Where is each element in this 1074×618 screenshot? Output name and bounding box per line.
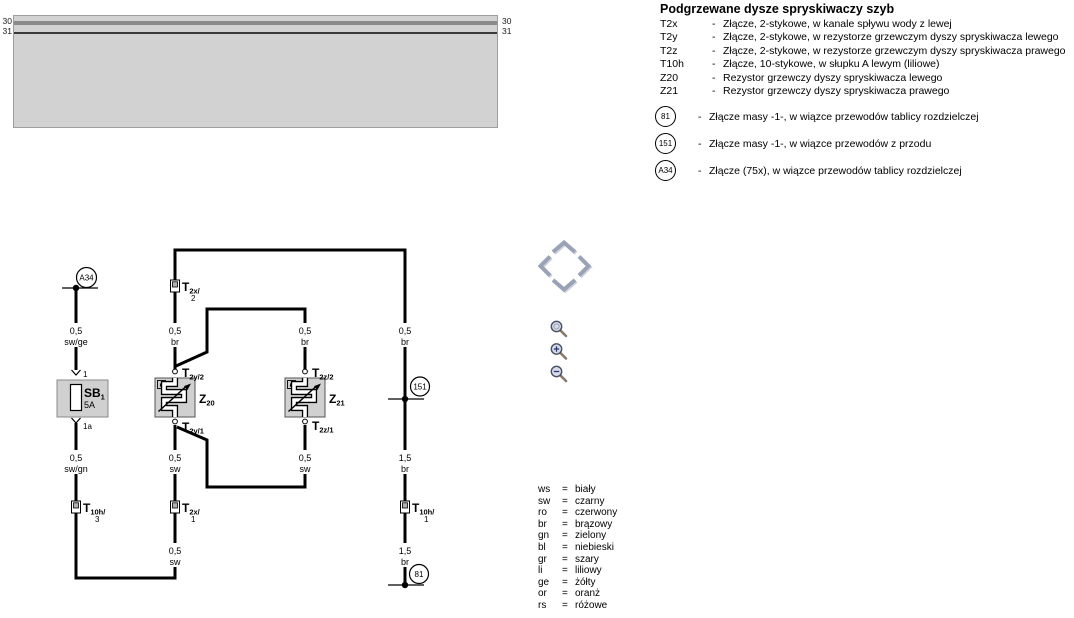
wiring-diagram-page: 30 31 30 31 xyxy=(0,0,1074,618)
svg-text:sw/gn: sw/gn xyxy=(64,464,88,474)
zoom-out-button[interactable] xyxy=(551,366,566,381)
resistor-z20: T2y/2 T2y/1 Z20 xyxy=(155,366,215,436)
legend-item: T10h-Złącze, 10-stykowe, w słupku A lewy… xyxy=(660,58,1071,71)
arrow-down-icon xyxy=(72,418,81,423)
pan-right-button[interactable] xyxy=(579,257,590,277)
circuit-wires xyxy=(76,250,405,585)
fuse-pin-top: 1 xyxy=(83,370,88,379)
svg-text:sw: sw xyxy=(170,557,182,567)
a34-circle-icon: A34 xyxy=(655,160,676,181)
junction-dot xyxy=(73,285,79,291)
svg-text:81: 81 xyxy=(415,570,424,579)
svg-text:0,5: 0,5 xyxy=(169,453,182,463)
legend-item: Z21-Rezystor grzewczy dyszy spryskiwacza… xyxy=(660,85,1071,98)
svg-text:br: br xyxy=(171,337,179,347)
color-row: ws=biały xyxy=(538,484,617,496)
legend-circle-item: 151-Złącze masy -1-, w wiązce przewodów … xyxy=(655,133,1071,154)
color-row: bl=niebieski xyxy=(538,542,617,554)
legend-circle-item: 81-Złącze masy -1-, w wiązce przewodów t… xyxy=(655,106,1071,127)
svg-text:2: 2 xyxy=(191,294,196,303)
fuse-sb1: 1 1a SB1 5A xyxy=(57,370,108,431)
svg-text:sw: sw xyxy=(300,464,312,474)
svg-text:1: 1 xyxy=(191,515,196,524)
legend-circle-item: A34-Złącze (75x), w wiązce przewodów tab… xyxy=(655,160,1071,181)
svg-text:151: 151 xyxy=(413,383,427,392)
legend-item: T2y-Złącze, 2-stykowe, w rezystorze grze… xyxy=(660,31,1071,44)
color-row: li=liliowy xyxy=(538,565,617,577)
pan-controls xyxy=(541,243,590,291)
pan-up-button[interactable] xyxy=(553,243,576,254)
svg-text:0,5: 0,5 xyxy=(169,546,182,556)
legend-item: T2x-Złącze, 2-stykowe, w kanale spływu w… xyxy=(660,18,1071,31)
zoom-controls xyxy=(551,321,566,381)
color-row: gr=szary xyxy=(538,554,617,566)
color-row: ge=żółty xyxy=(538,577,617,589)
svg-text:br: br xyxy=(401,337,409,347)
component-legend: Podgrzewane dysze spryskiwaczy szyb T2x-… xyxy=(655,2,1071,181)
chevron-down-icon xyxy=(553,280,575,290)
svg-text:1,5: 1,5 xyxy=(399,453,412,463)
z20-label: Z20 xyxy=(199,392,215,408)
wire-labels: 0,5 sw/ge 0,5 sw/gn 0,5 br 0,5 br 0,5 br… xyxy=(64,326,411,567)
svg-text:3: 3 xyxy=(95,515,100,524)
fuse-pin-bottom: 1a xyxy=(83,422,92,431)
terminal-t2y1-label: T2y/1 xyxy=(182,420,204,436)
color-row: br=brązowy xyxy=(538,519,617,531)
junction-dot xyxy=(402,582,408,588)
ground-81: 81 xyxy=(388,565,429,589)
magnifier-icon xyxy=(551,321,561,331)
svg-text:sw: sw xyxy=(170,464,182,474)
zoom-reset-button[interactable] xyxy=(551,321,566,336)
svg-text:0,5: 0,5 xyxy=(299,453,312,463)
ground-151-circle-icon: 151 xyxy=(655,133,676,154)
arrow-down-icon xyxy=(72,370,81,375)
svg-text:0,5: 0,5 xyxy=(70,326,83,336)
svg-text:0,5: 0,5 xyxy=(169,326,182,336)
legend-item: T2z-Złącze, 2-stykowe, w rezystorze grze… xyxy=(660,45,1071,58)
color-row: ro=czerwony xyxy=(538,507,617,519)
a34-label: A34 xyxy=(79,274,94,283)
svg-text:br: br xyxy=(401,464,409,474)
svg-text:0,5: 0,5 xyxy=(299,326,312,336)
legend-item: Z20-Rezystor grzewczy dyszy spryskiwacza… xyxy=(660,72,1071,85)
color-row: gn=zielony xyxy=(538,530,617,542)
terminal-t2z1-label: T2z/1 xyxy=(312,419,334,435)
svg-text:br: br xyxy=(401,557,409,567)
svg-text:0,5: 0,5 xyxy=(399,326,412,336)
svg-text:1: 1 xyxy=(424,515,429,524)
junction-dot xyxy=(402,396,408,402)
svg-text:br: br xyxy=(301,337,309,347)
color-row: or=oranż xyxy=(538,588,617,600)
zoom-in-button[interactable] xyxy=(551,344,566,359)
color-row: sw=czarny xyxy=(538,496,617,508)
ground-81-circle-icon: 81 xyxy=(655,106,676,127)
wire-color-legend: ws=biały sw=czarny ro=czerwony br=brązow… xyxy=(538,484,617,612)
z21-label: Z21 xyxy=(329,392,345,408)
ground-151: 151 xyxy=(388,377,430,402)
svg-text:0,5: 0,5 xyxy=(70,453,83,463)
fuse-rating: 5A xyxy=(84,400,95,410)
resistor-z21: T2z/2 T2z/1 Z21 xyxy=(285,366,345,435)
terminal-t2z2-label: T2z/2 xyxy=(312,366,334,382)
terminal-t2y2-label: T2y/2 xyxy=(182,366,204,382)
pan-left-button[interactable] xyxy=(541,257,552,277)
pan-down-button[interactable] xyxy=(553,280,576,291)
svg-text:1,5: 1,5 xyxy=(399,546,412,556)
color-row: rs=różowe xyxy=(538,600,617,612)
legend-title: Podgrzewane dysze spryskiwaczy szyb xyxy=(660,2,1071,16)
svg-text:sw/ge: sw/ge xyxy=(64,337,88,347)
a34-terminal: A34 xyxy=(62,268,98,292)
